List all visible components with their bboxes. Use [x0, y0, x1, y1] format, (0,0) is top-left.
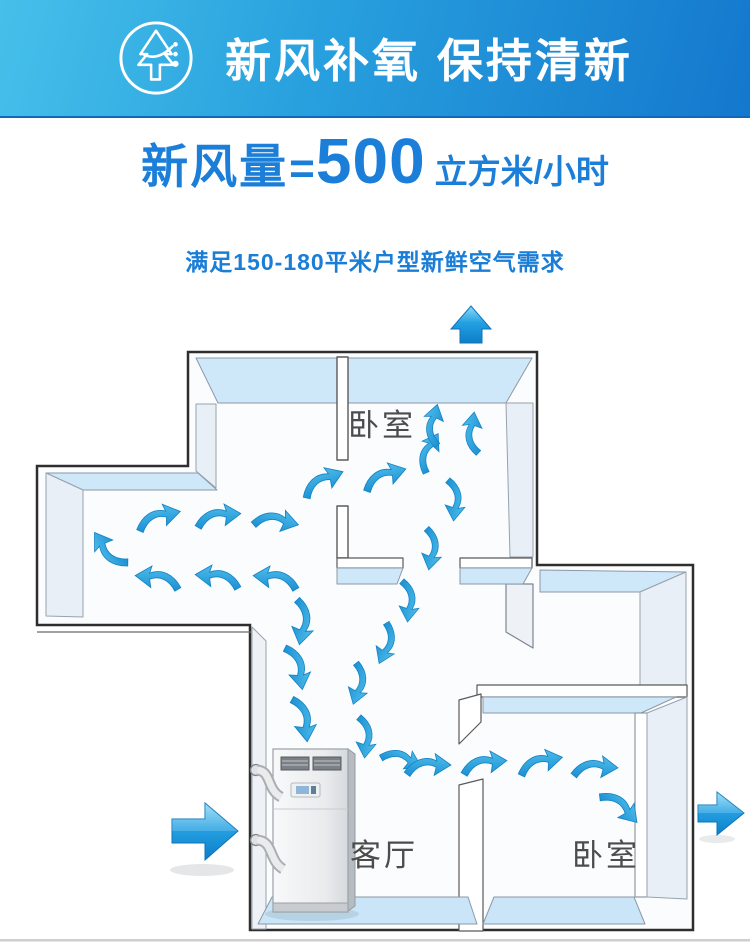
room-label-right-bedroom: 卧室	[572, 838, 640, 873]
section-divider	[0, 939, 750, 942]
unit-display	[296, 786, 309, 794]
room-label-living-room: 客厅	[350, 838, 418, 873]
room-label-top-bedroom: 卧室	[348, 408, 416, 443]
floorplan-diagram: 卧室 客厅 卧室	[0, 0, 750, 947]
outlet-arrow-top	[451, 306, 491, 343]
